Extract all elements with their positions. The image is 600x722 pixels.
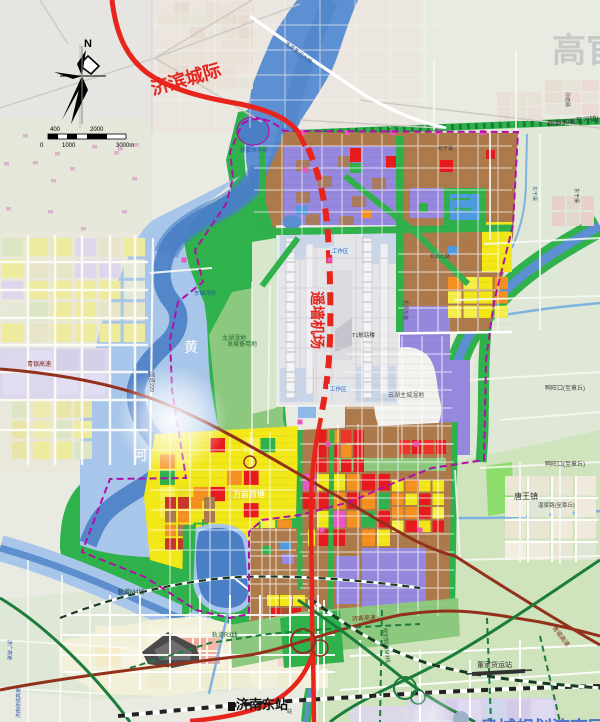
svg-text:2000: 2000 [90, 127, 104, 133]
svg-text:东干渠: 东干渠 [531, 186, 538, 201]
svg-text:济南绕城高速: 济南绕城高速 [15, 688, 22, 718]
svg-text:工作区: 工作区 [332, 247, 349, 255]
svg-text:温梁路(至章丘): 温梁路(至章丘) [538, 501, 575, 509]
svg-text:济南东站: 济南东站 [236, 697, 288, 712]
svg-text:河: 河 [133, 447, 147, 463]
svg-text:泉城规划济南园好: 泉城规划济南园好 [480, 717, 600, 722]
svg-text:高官: 高官 [552, 32, 600, 70]
svg-text:1000: 1000 [62, 143, 76, 149]
svg-text:胡家岸浮桥: 胡家岸浮桥 [240, 146, 268, 154]
svg-text:东城浮桥: 东城浮桥 [194, 289, 217, 297]
svg-text:万亩荷塘: 万亩荷塘 [233, 489, 265, 499]
svg-text:济广高速: 济广高速 [6, 640, 13, 660]
svg-text:工作区: 工作区 [330, 385, 347, 393]
svg-text:轨道M4线: 轨道M4线 [118, 588, 144, 596]
svg-text:孙唐路: 孙唐路 [564, 92, 571, 107]
svg-text:T1航站楼: T1航站楼 [352, 331, 375, 339]
svg-text:唐王镇: 唐王镇 [514, 491, 538, 501]
svg-text:轨道R3线: 轨道R3线 [212, 631, 238, 639]
svg-text:机场北路: 机场北路 [430, 253, 450, 260]
svg-text:发展备用地: 发展备用地 [227, 340, 257, 348]
svg-text:遥墙机场: 遥墙机场 [308, 291, 326, 349]
svg-text:3000m: 3000m [116, 143, 134, 149]
svg-text:站: 站 [287, 708, 292, 715]
svg-text:黄: 黄 [184, 339, 198, 355]
svg-text:龙湖湿地: 龙湖湿地 [222, 334, 246, 342]
svg-text:青银高速: 青银高速 [27, 360, 51, 368]
svg-text:东干渠: 东干渠 [573, 188, 580, 203]
svg-text:云湖主城湿地: 云湖主城湿地 [388, 391, 424, 399]
svg-text:纪干渠: 纪干渠 [438, 145, 453, 152]
svg-text:董家货运站: 董家货运站 [477, 660, 512, 669]
svg-text:国道220: 国道220 [148, 372, 156, 392]
svg-text:鸭旺口(至章丘): 鸭旺口(至章丘) [545, 384, 585, 392]
svg-text:400: 400 [50, 127, 61, 133]
svg-text:N: N [84, 38, 92, 50]
svg-text:鸭旺口(至章丘): 鸭旺口(至章丘) [545, 460, 585, 468]
svg-text:机场东路: 机场东路 [402, 300, 409, 320]
